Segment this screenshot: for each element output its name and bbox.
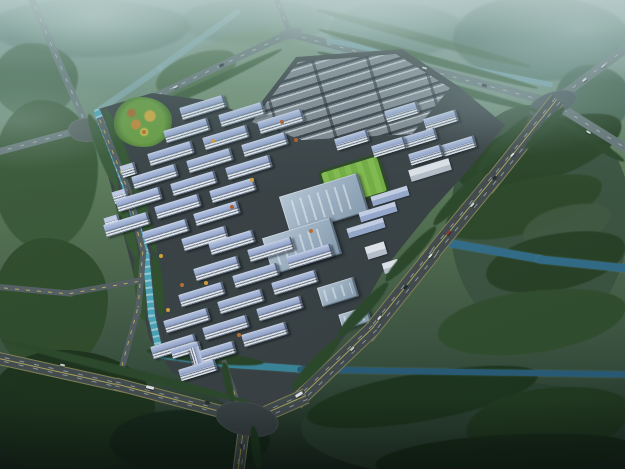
ornamental-tree: [250, 178, 254, 182]
ornamental-tree: [280, 120, 284, 124]
ornamental-tree: [180, 283, 184, 287]
ornamental-tree: [309, 229, 313, 233]
ornamental-tree: [294, 138, 298, 142]
ornamental-tree: [204, 281, 208, 285]
ornamental-tree: [230, 205, 234, 209]
ornamental-tree: [211, 139, 215, 143]
ornamental-tree: [142, 130, 146, 134]
ornamental-tree: [237, 333, 241, 337]
car: [240, 444, 243, 449]
aerial-rendering-industrial-park: [0, 0, 625, 469]
canal-road: [118, 307, 141, 372]
ornamental-tree: [166, 308, 170, 312]
ornamental-tree: [159, 254, 163, 258]
forest: [434, 278, 625, 366]
